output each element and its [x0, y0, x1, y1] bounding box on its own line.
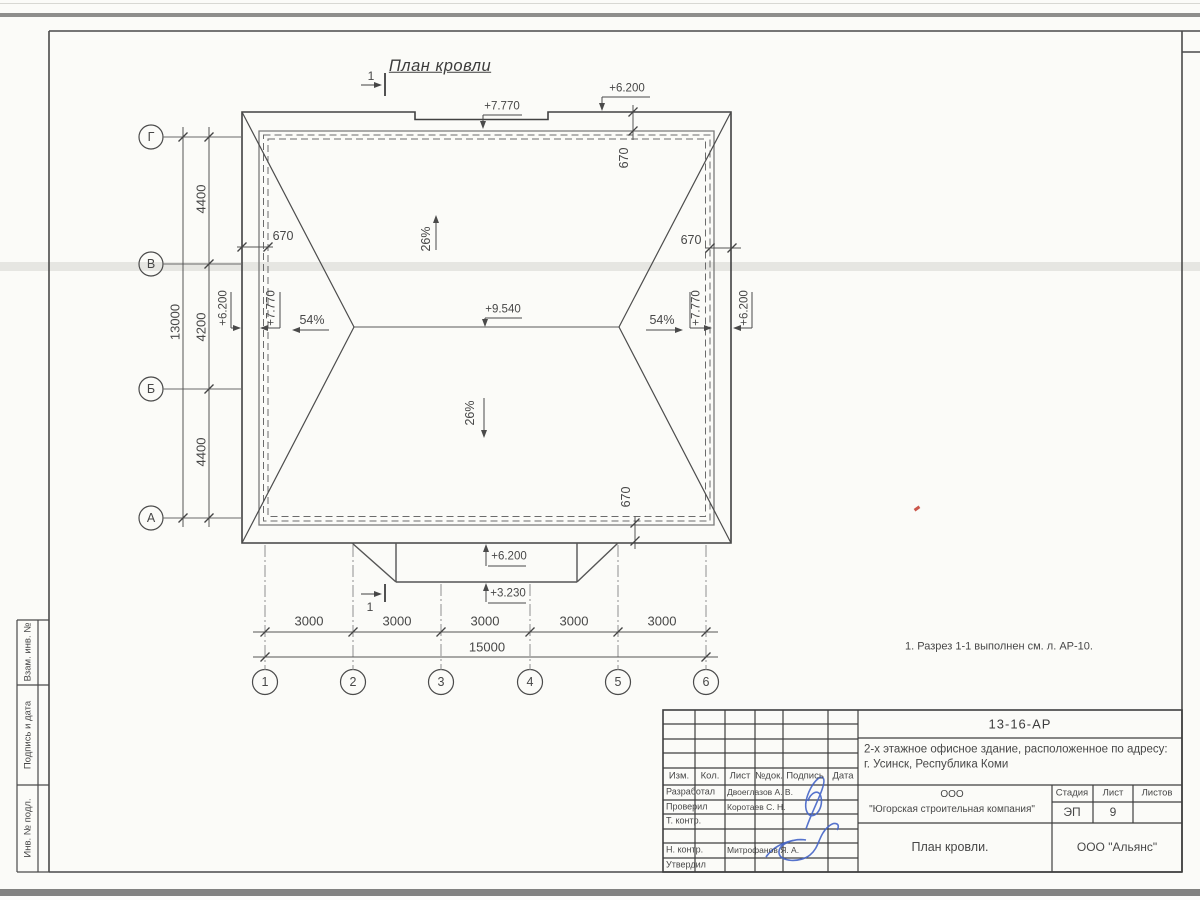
name-mitrofanov: Митрофанов Я. А. — [727, 846, 799, 855]
section-marks — [361, 73, 385, 602]
axis-col-5: 5 — [615, 676, 622, 689]
slope-label-right: 54% — [649, 314, 674, 327]
axis-col-4: 4 — [527, 676, 534, 689]
elevation-parapet-right: +6.200 — [739, 290, 751, 326]
sheet-number-value: 9 — [1110, 806, 1117, 818]
name-dvoeglazov: Двоеглазов А. В. — [727, 788, 793, 797]
note-text: 1. Разрез 1-1 выполнен см. л. АР-10. — [905, 642, 1093, 653]
axis-col-2: 2 — [350, 676, 357, 689]
dim-bottom-total: 15000 — [469, 641, 505, 654]
stage-label: Стадия — [1056, 788, 1088, 798]
slope-label-left: 54% — [299, 314, 324, 327]
role-razrabotal: Разработал — [666, 788, 715, 797]
company-line2: "Югорская строительная компания" — [869, 805, 1035, 815]
elevation-ridge: +9.540 — [485, 304, 521, 316]
dimension-ticks — [179, 108, 737, 662]
slope-label-top: 26% — [420, 226, 433, 251]
dim-bottom-segment-1: 3000 — [295, 615, 324, 628]
contractor-name: ООО "Альянс" — [1077, 841, 1157, 853]
drawing-title: План кровли — [389, 58, 491, 75]
tb-header-kol: Кол. — [701, 771, 720, 781]
dim-left-segment-3: 4400 — [195, 438, 208, 467]
axis-row-b: Б — [147, 383, 155, 396]
leader-lines — [231, 97, 752, 603]
dim-bottom-segment-5: 3000 — [648, 615, 677, 628]
tb-header-ndoc: №док. — [755, 771, 783, 781]
drawing-canvas — [0, 0, 1200, 900]
axis-col-6: 6 — [703, 676, 710, 689]
axis-row-v: В — [147, 258, 155, 271]
elevation-parapet-left: +6.200 — [218, 290, 230, 326]
dim-bottom-segment-3: 3000 — [471, 615, 500, 628]
company-line1: ООО — [940, 790, 963, 800]
dim-left-segment-1: 4400 — [195, 185, 208, 214]
dim-left-total: 13000 — [169, 304, 182, 340]
tb-header-data: Дата — [832, 771, 853, 781]
role-tkontr: Т. контр. — [666, 817, 701, 826]
axis-row-a: А — [147, 512, 155, 525]
object-name-line1: 2-х этажное офисное здание, расположенно… — [864, 744, 1168, 756]
roof-eave-edge — [259, 131, 714, 525]
overhang-dim-right: 670 — [681, 234, 702, 247]
name-korotaev: Коротаев С. Н. — [727, 803, 785, 812]
elevation-roof-edge-top: +7.770 — [484, 101, 520, 113]
slope-label-bottom: 26% — [464, 400, 477, 425]
axis-row-g: Г — [148, 131, 155, 144]
axis-col-1: 1 — [262, 676, 269, 689]
stage-value: ЭП — [1063, 806, 1080, 818]
tb-header-podpis: Подпись — [786, 771, 824, 781]
drawing-name: План кровли. — [911, 841, 988, 854]
axis-col-3: 3 — [438, 676, 445, 689]
dim-bottom-segment-2: 3000 — [383, 615, 412, 628]
role-nkontr: Н. контр. — [666, 846, 703, 855]
dim-left-segment-2: 4200 — [195, 313, 208, 342]
overhang-dim-left: 670 — [273, 230, 294, 243]
tb-header-izm: Изм. — [669, 771, 689, 781]
roof-eaves-dashed — [264, 135, 711, 521]
tb-header-list: Лист — [730, 771, 751, 781]
strip-label-podpis: Подпись и дата — [23, 701, 33, 769]
elevation-roof-edge-right: +7.770 — [691, 290, 703, 326]
strip-label-vzam: Взам. инв. № — [23, 623, 33, 682]
leader-arrowheads — [233, 82, 741, 597]
elevation-canopy-top: +6.200 — [491, 551, 527, 563]
elevation-parapet-top-right: +6.200 — [609, 83, 645, 95]
section-mark-bottom-label: 1 — [367, 601, 374, 613]
overhang-dim-top-right: 670 — [618, 148, 631, 169]
sheets-label: Листов — [1142, 788, 1173, 798]
scanned-drawing-sheet: { "drawing": { "title": "План кровли", "… — [0, 0, 1200, 900]
strip-label-inv: Инв. № подл. — [23, 798, 33, 857]
axis-circles — [139, 125, 719, 695]
role-proveril: Проверил — [666, 803, 707, 812]
elevation-roof-edge-left: +7.770 — [266, 290, 278, 326]
dim-bottom-segment-4: 3000 — [560, 615, 589, 628]
section-mark-top-label: 1 — [368, 70, 375, 82]
sheet-label: Лист — [1103, 788, 1124, 798]
doc-number: 13-16-АР — [989, 718, 1052, 731]
role-utverdil: Утвердил — [666, 861, 706, 870]
elevation-canopy-edge: +3.230 — [490, 588, 526, 600]
dimension-lines — [183, 105, 741, 657]
object-name-line2: г. Усинск, Республика Коми — [864, 759, 1008, 771]
overhang-dim-bottom-right: 670 — [620, 487, 633, 508]
